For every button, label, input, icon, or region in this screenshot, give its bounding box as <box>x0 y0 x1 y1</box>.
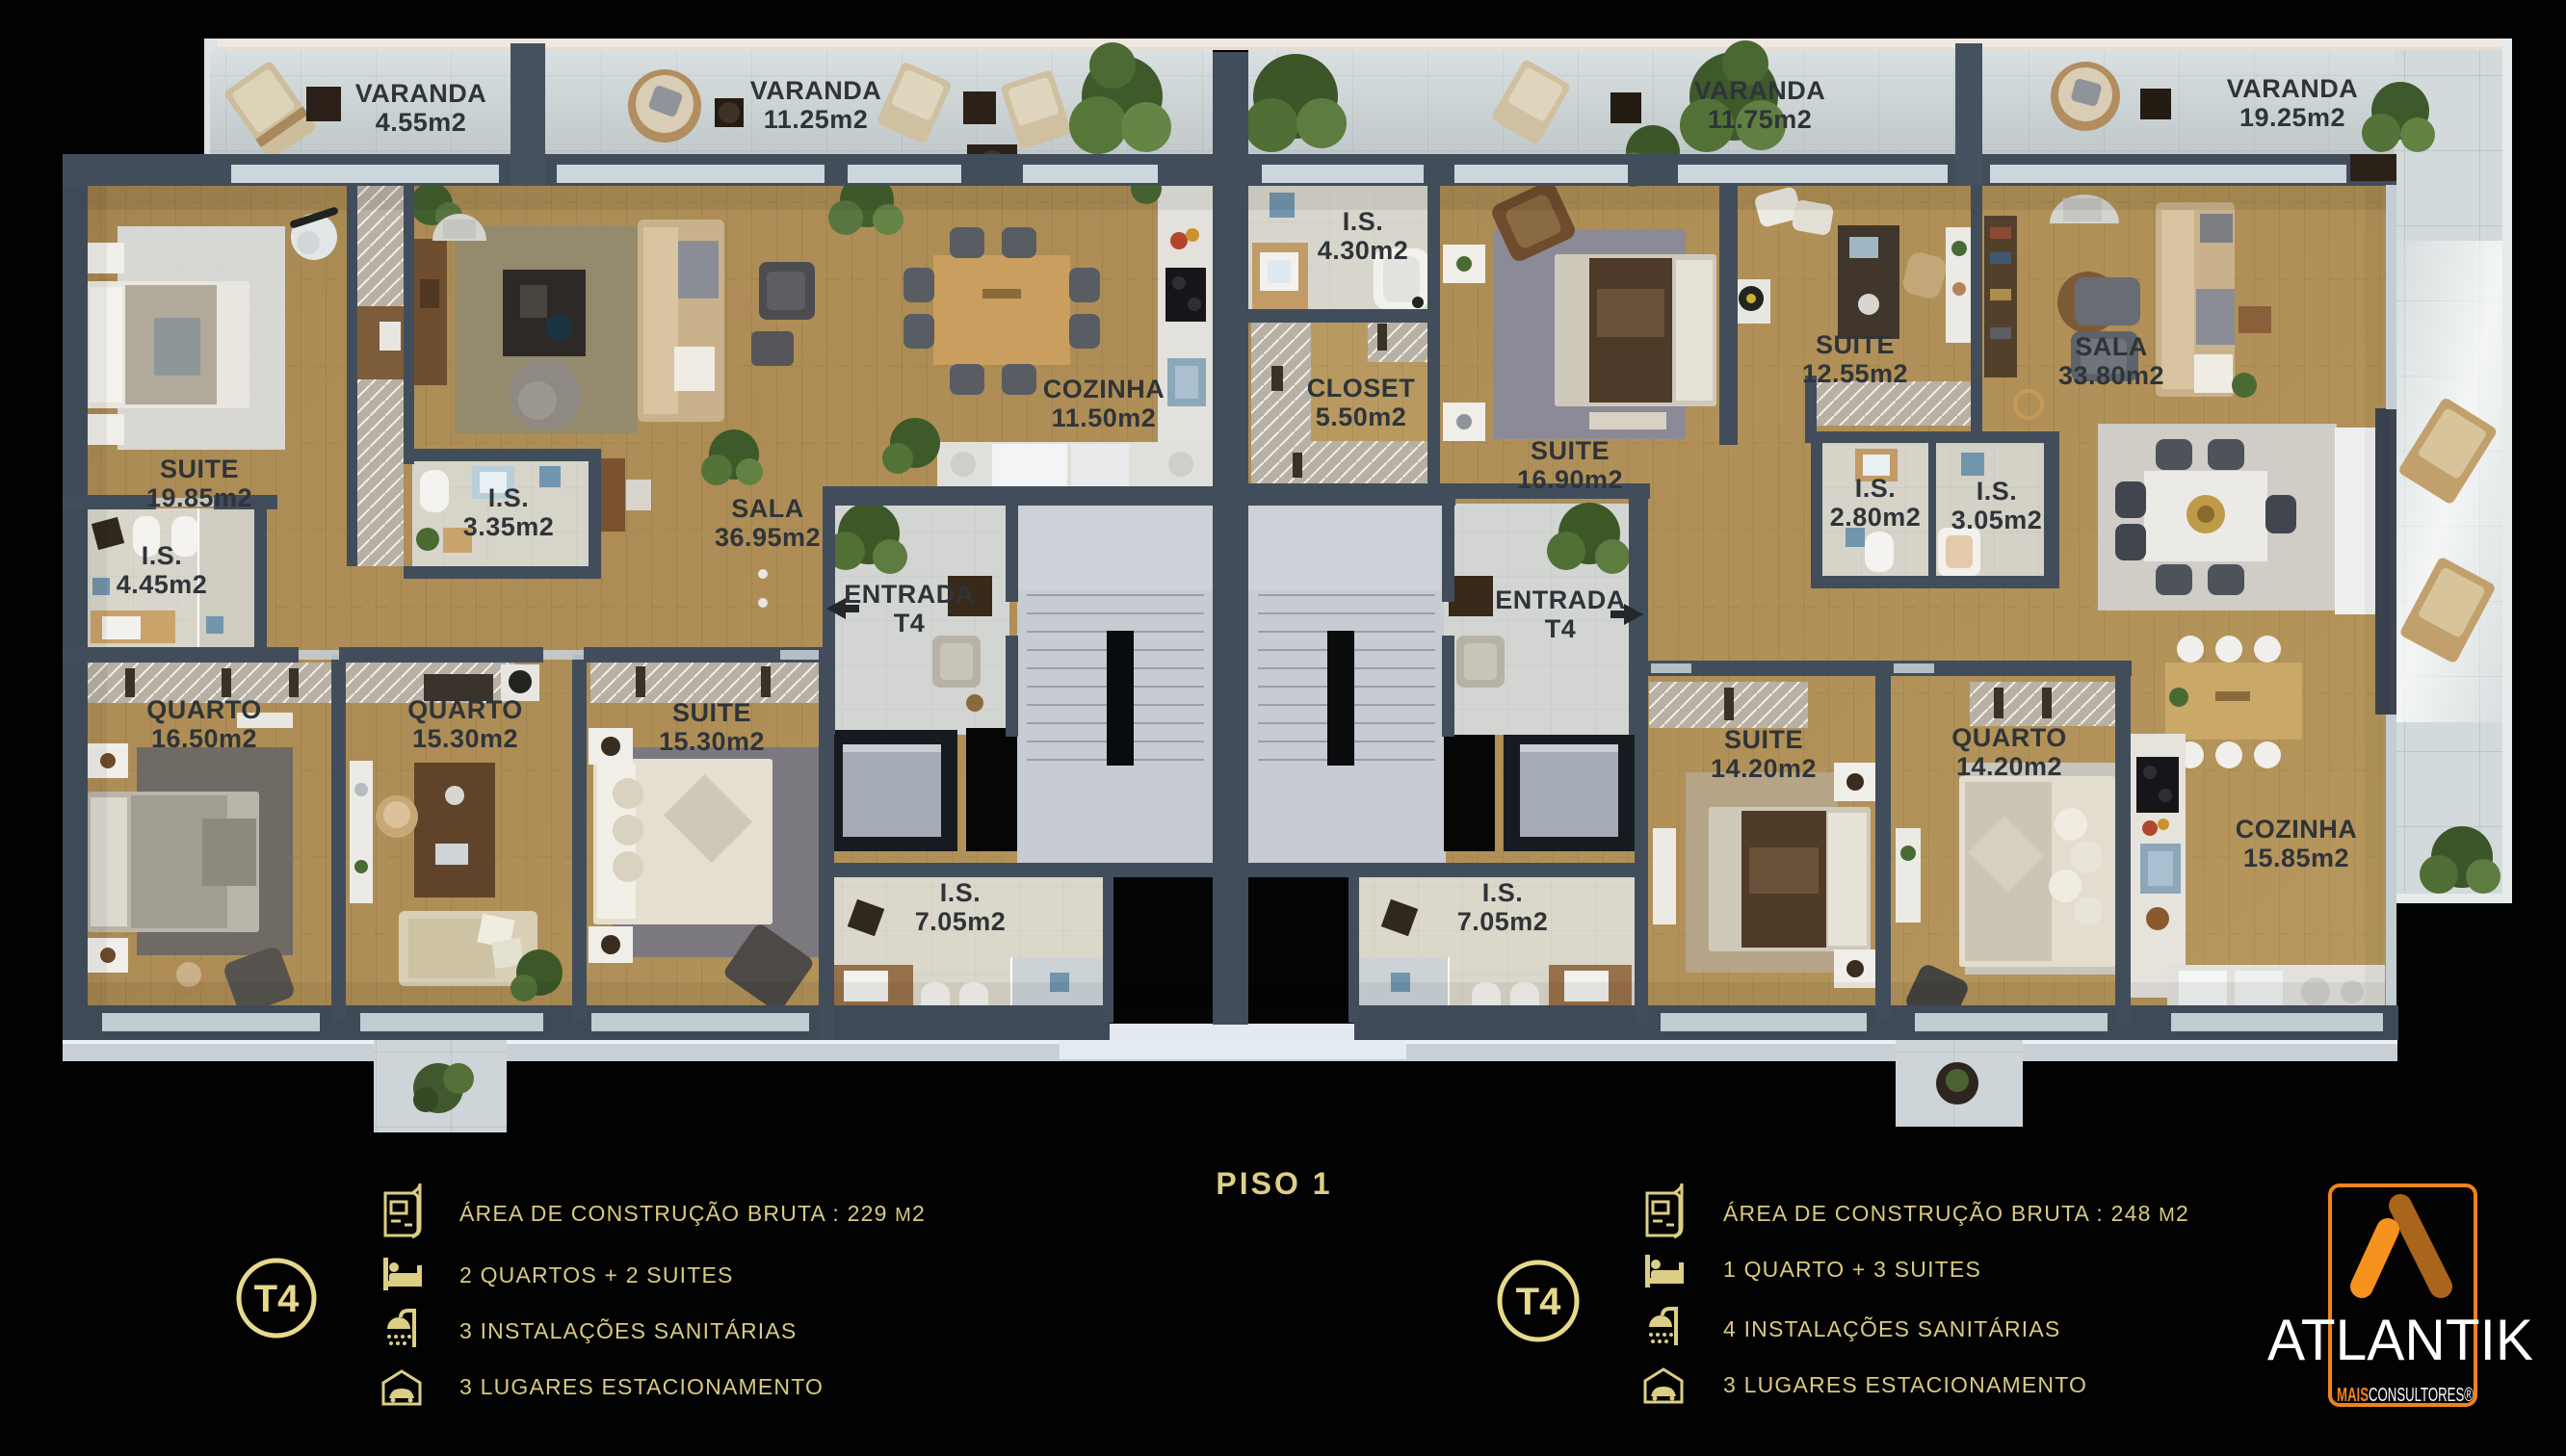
svg-text:SUITE: SUITE <box>1531 436 1610 465</box>
svg-text:T4: T4 <box>894 609 926 637</box>
svg-text:ÁREA DE CONSTRUÇÃO BRUTA : 24: ÁREA DE CONSTRUÇÃO BRUTA : 248 M2 <box>1723 1201 2189 1226</box>
svg-text:CLOSET: CLOSET <box>1307 374 1416 403</box>
svg-text:11.75m2: 11.75m2 <box>1708 105 1813 134</box>
svg-text:COZINHA: COZINHA <box>2236 815 2358 844</box>
svg-text:ENTRADA: ENTRADA <box>844 580 975 609</box>
svg-text:2 QUARTOS + 2 SUITES: 2 QUARTOS + 2 SUITES <box>459 1262 734 1287</box>
svg-text:14.20m2: 14.20m2 <box>1956 752 2062 781</box>
svg-text:ATLANTIK: ATLANTIK <box>2267 1308 2533 1372</box>
svg-text:I.S.: I.S. <box>1977 477 2018 506</box>
svg-text:11.25m2: 11.25m2 <box>764 105 869 134</box>
svg-text:T4: T4 <box>1516 1281 1561 1323</box>
svg-text:15.85m2: 15.85m2 <box>2243 844 2349 872</box>
svg-text:SALA: SALA <box>731 494 804 523</box>
svg-text:3.05m2: 3.05m2 <box>1951 506 2043 534</box>
svg-text:PISO 1: PISO 1 <box>1216 1166 1332 1201</box>
svg-text:4.45m2: 4.45m2 <box>117 570 208 599</box>
svg-text:I.S.: I.S. <box>1855 474 1897 503</box>
svg-text:I.S.: I.S. <box>1343 207 1384 236</box>
svg-text:SALA: SALA <box>2075 332 2148 361</box>
svg-text:3 LUGARES ESTACIONAMENTO: 3 LUGARES ESTACIONAMENTO <box>459 1374 824 1399</box>
svg-text:SUITE: SUITE <box>1816 330 1895 359</box>
svg-text:I.S.: I.S. <box>488 483 530 512</box>
svg-text:36.95m2: 36.95m2 <box>715 523 821 552</box>
svg-text:5.50m2: 5.50m2 <box>1316 403 1407 431</box>
svg-text:T4: T4 <box>1545 614 1577 643</box>
svg-text:VARANDA: VARANDA <box>1694 76 1826 105</box>
svg-text:19.25m2: 19.25m2 <box>2239 103 2345 132</box>
svg-text:14.20m2: 14.20m2 <box>1711 754 1817 783</box>
svg-text:I.S.: I.S. <box>940 878 982 907</box>
svg-text:3 LUGARES ESTACIONAMENTO: 3 LUGARES ESTACIONAMENTO <box>1723 1372 2087 1397</box>
svg-text:VARANDA: VARANDA <box>355 79 487 108</box>
svg-text:ENTRADA: ENTRADA <box>1495 585 1626 614</box>
svg-text:I.S.: I.S. <box>142 541 183 570</box>
svg-text:4.55m2: 4.55m2 <box>376 108 467 137</box>
svg-text:33.80m2: 33.80m2 <box>2058 361 2164 390</box>
svg-text:7.05m2: 7.05m2 <box>1457 907 1549 936</box>
svg-text:4 INSTALAÇÕES SANITÁRIAS: 4 INSTALAÇÕES SANITÁRIAS <box>1723 1315 2060 1341</box>
svg-text:19.85m2: 19.85m2 <box>146 483 252 512</box>
svg-text:MAISCONSULTORES®: MAISCONSULTORES® <box>2337 1385 2474 1406</box>
svg-text:SUITE: SUITE <box>1724 725 1803 754</box>
svg-text:QUARTO: QUARTO <box>407 695 523 724</box>
svg-text:ÁREA DE CONSTRUÇÃO BRUTA : 22: ÁREA DE CONSTRUÇÃO BRUTA : 229 M2 <box>459 1201 926 1226</box>
svg-text:QUARTO: QUARTO <box>1951 723 2067 752</box>
svg-text:3.35m2: 3.35m2 <box>463 512 555 541</box>
svg-text:15.30m2: 15.30m2 <box>412 724 518 753</box>
svg-text:2.80m2: 2.80m2 <box>1830 503 1922 532</box>
svg-text:SUITE: SUITE <box>160 455 239 483</box>
svg-text:7.05m2: 7.05m2 <box>915 907 1007 936</box>
svg-text:I.S.: I.S. <box>1482 878 1524 907</box>
svg-text:11.50m2: 11.50m2 <box>1052 403 1157 432</box>
svg-text:16.50m2: 16.50m2 <box>151 724 257 753</box>
svg-text:SUITE: SUITE <box>672 698 751 727</box>
svg-text:VARANDA: VARANDA <box>750 76 882 105</box>
svg-text:VARANDA: VARANDA <box>2227 74 2359 103</box>
svg-text:QUARTO: QUARTO <box>146 695 262 724</box>
svg-text:12.55m2: 12.55m2 <box>1802 359 1908 388</box>
svg-text:1 QUARTO + 3 SUITES: 1 QUARTO + 3 SUITES <box>1723 1257 1981 1282</box>
svg-text:3 INSTALAÇÕES SANITÁRIAS: 3 INSTALAÇÕES SANITÁRIAS <box>459 1317 797 1343</box>
svg-text:4.30m2: 4.30m2 <box>1318 236 1409 265</box>
svg-text:COZINHA: COZINHA <box>1043 375 1165 403</box>
svg-text:16.90m2: 16.90m2 <box>1517 465 1623 494</box>
svg-text:T4: T4 <box>254 1278 300 1320</box>
svg-text:15.30m2: 15.30m2 <box>659 727 765 756</box>
